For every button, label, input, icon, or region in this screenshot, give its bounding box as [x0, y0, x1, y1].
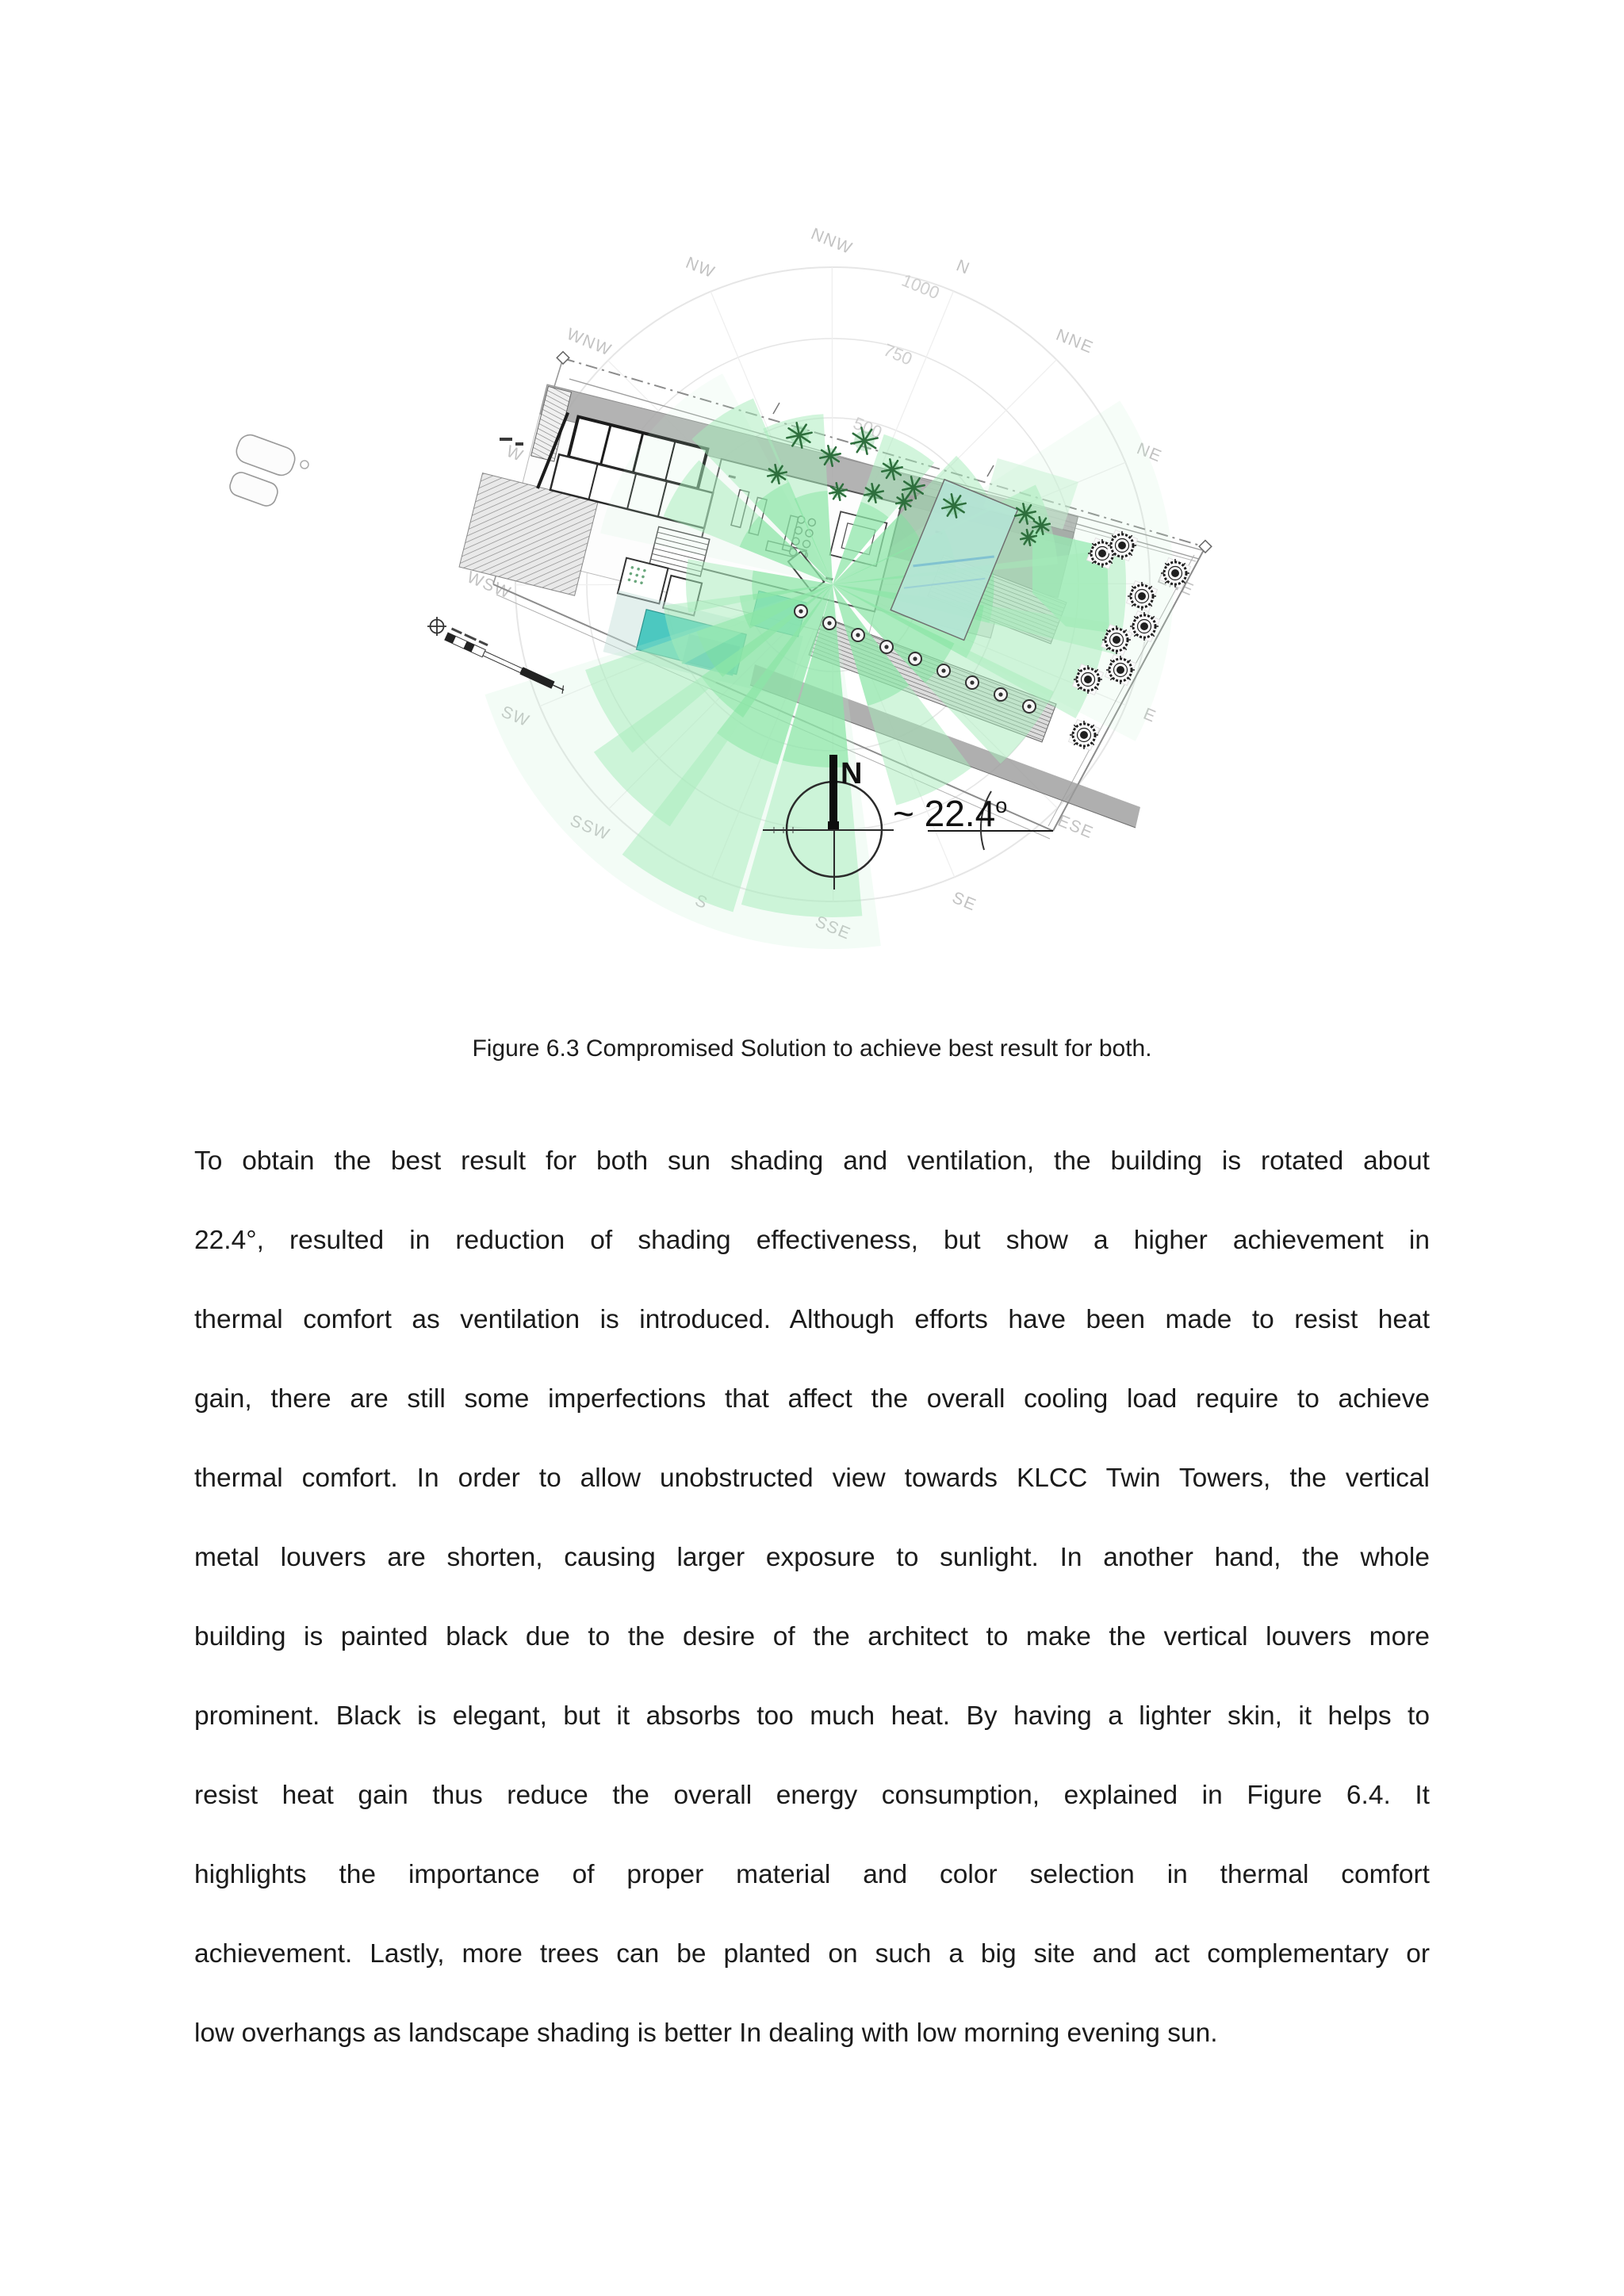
- column-marker: [880, 641, 893, 653]
- tree-icon: [1068, 719, 1099, 750]
- angle-label: ~ 22.4o: [893, 793, 1007, 834]
- ring-value-label: 750: [881, 339, 915, 369]
- paragraph-line: metal louvers are shorten, causing large…: [194, 1518, 1430, 1598]
- site-plan-windrose-figure: 2505007501000 NNNENEENEEESESESSESSSWSWWS…: [0, 0, 1624, 1110]
- paragraph-line: gain, there are still some imperfections…: [194, 1360, 1430, 1439]
- compass-label-w: W: [504, 442, 526, 465]
- ring-value-label: 1000: [899, 270, 943, 304]
- scale-bar: [427, 617, 569, 694]
- compass-label-n: N: [954, 256, 973, 278]
- paragraph-line: highlights the importance of proper mate…: [194, 1835, 1430, 1915]
- body-paragraph: To obtain the best result for both sun s…: [194, 1122, 1430, 2073]
- column-marker: [994, 688, 1007, 701]
- paragraph-line: building is painted black due to the des…: [194, 1598, 1430, 1677]
- column-marker: [966, 676, 979, 689]
- compass-label-nnw: NNW: [808, 224, 855, 258]
- column-marker: [937, 664, 950, 677]
- column-marker: [795, 605, 807, 618]
- existing-structures: [228, 431, 308, 508]
- paragraph-line: thermal comfort as ventilation is introd…: [194, 1280, 1430, 1360]
- column-marker: [909, 652, 921, 665]
- paragraph-line: To obtain the best result for both sun s…: [194, 1122, 1430, 1201]
- paragraph-line: achievement. Lastly, more trees can be p…: [194, 1915, 1430, 1994]
- compass-label-wnw: WNW: [564, 325, 615, 360]
- figure-caption: Figure 6.3 Compromised Solution to achie…: [0, 1035, 1624, 1062]
- compass-crosshair-icon: [427, 617, 446, 636]
- site-corner-marker: [1199, 541, 1212, 553]
- paragraph-line: prominent. Black is elegant, but it abso…: [194, 1677, 1430, 1756]
- paragraph-line: low overhangs as landscape shading is be…: [194, 1994, 1430, 2073]
- paragraph-line: resist heat gain thus reduce the overall…: [194, 1756, 1430, 1835]
- paragraph-line: 22.4°, resulted in reduction of shading …: [194, 1201, 1430, 1280]
- compass-label-se: SE: [949, 889, 979, 915]
- column-marker: [823, 617, 836, 629]
- column-marker: [1023, 700, 1036, 713]
- site-corner-marker: [557, 352, 569, 365]
- compass-label-nw: NW: [683, 254, 718, 282]
- north-label: N: [841, 757, 862, 790]
- paragraph-line: thermal comfort. In order to allow unobs…: [194, 1439, 1430, 1518]
- compass-label-nne: NNE: [1053, 326, 1096, 358]
- document-page: { "page": { "background": "#ffffff" }, "…: [0, 0, 1624, 2296]
- column-marker: [852, 629, 864, 641]
- figure-6-3: 2505007501000 NNNENEENEEESESESSESSSWSWWS…: [0, 0, 1624, 1110]
